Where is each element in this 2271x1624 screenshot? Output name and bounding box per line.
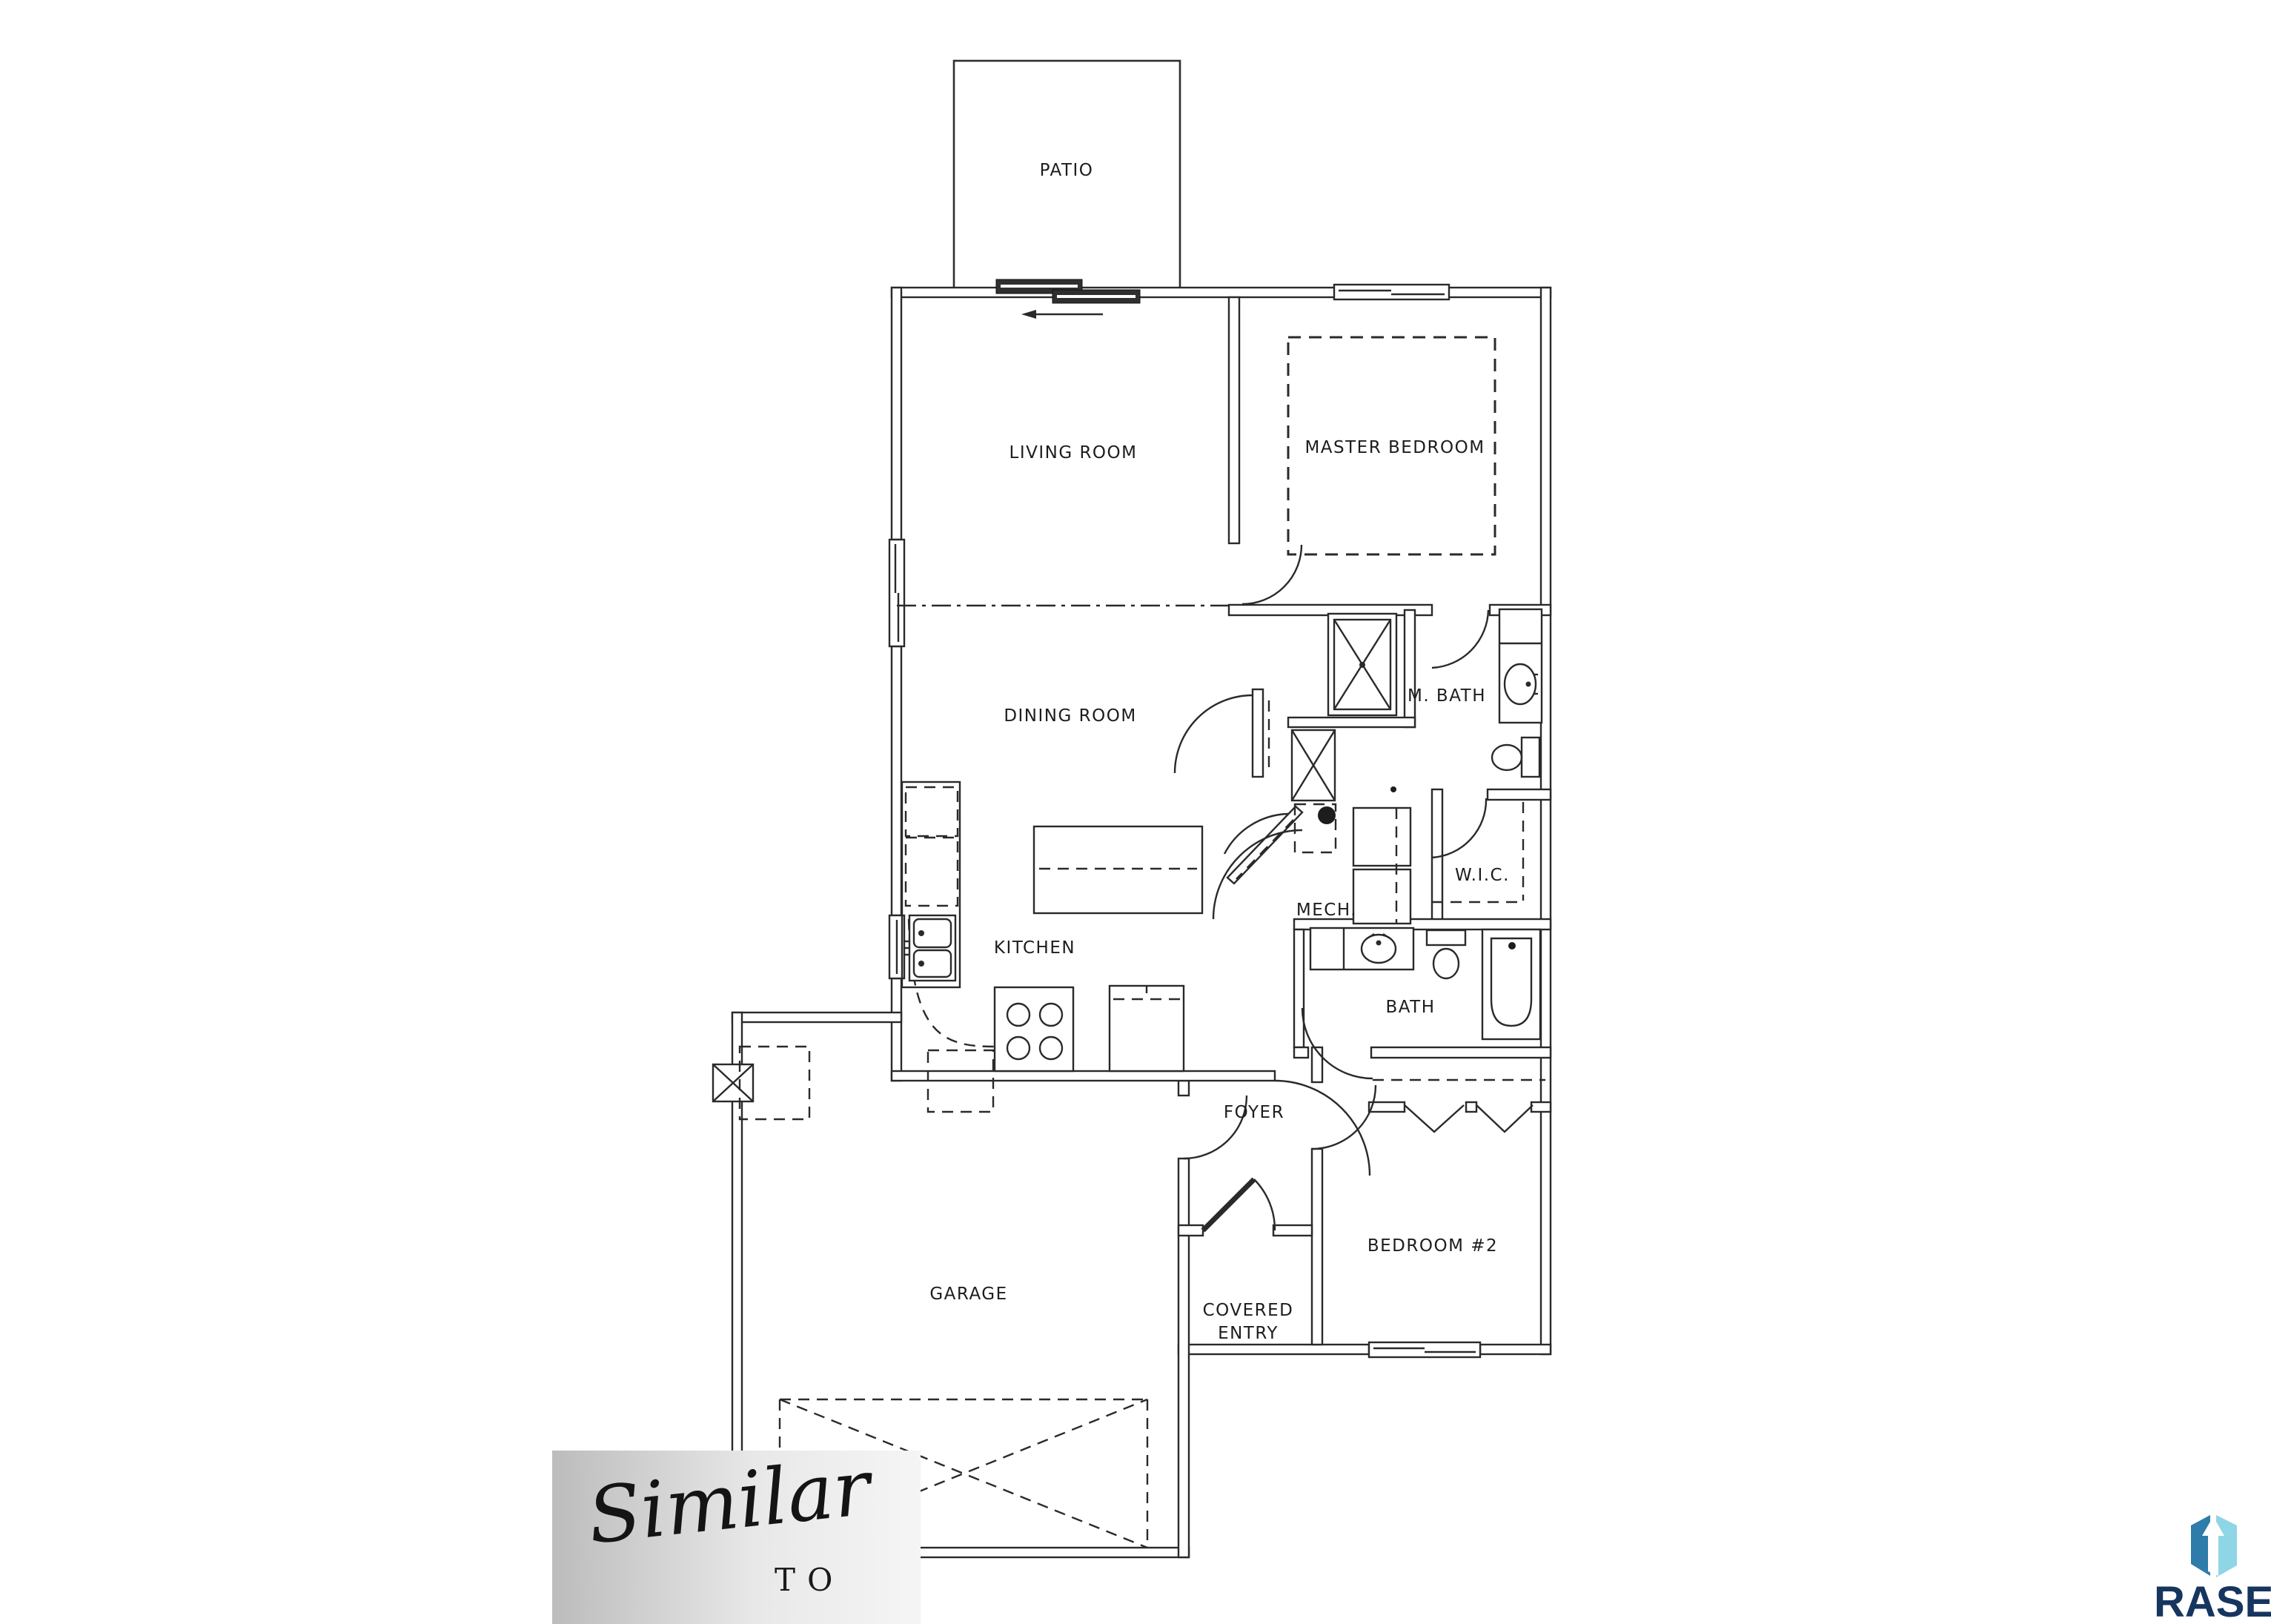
watermark: Similar TO (552, 1451, 921, 1624)
mbath-toilet-icon (1492, 738, 1539, 777)
room-label-mech: MECH. (1296, 901, 1357, 920)
bathtub-icon (1482, 929, 1540, 1039)
front-entry-door (1203, 1179, 1275, 1230)
furnace-icon (1292, 730, 1335, 801)
room-label-wic: W.I.C. (1455, 866, 1510, 885)
refrigerator-icon (906, 838, 958, 906)
garage-vent-icon (713, 1064, 753, 1101)
floor-plan-svg: PATIO LIVING ROOM MASTER BEDROOM M. BATH… (0, 0, 2271, 1624)
window-master (1334, 285, 1449, 299)
room-label-bedroom2: BEDROOM #2 (1367, 1236, 1498, 1256)
bath-vanity-sink-icon (1310, 928, 1413, 970)
room-label-patio: PATIO (1040, 161, 1094, 180)
brand-logo: RASE (2149, 1505, 2271, 1624)
bedroom2-door-arc (1312, 1085, 1376, 1149)
room-label-master: MASTER BEDROOM (1304, 438, 1485, 457)
stove-icon (995, 987, 1073, 1071)
floor-drain-icon (1318, 806, 1336, 824)
logo-text: RASE (2154, 1577, 2271, 1624)
sliding-door-icon (996, 279, 1140, 319)
room-label-bath: BATH (1385, 998, 1435, 1017)
room-label-garage: GARAGE (929, 1285, 1007, 1304)
shower-icon (1328, 614, 1396, 715)
window-dining (889, 540, 904, 646)
mbath-sink-icon (1499, 609, 1542, 723)
room-label-foyer: FOYER (1224, 1103, 1284, 1122)
watermark-script-text: Similar (584, 1442, 875, 1561)
floor-plan-page: PATIO LIVING ROOM MASTER BEDROOM M. BATH… (0, 0, 2271, 1624)
watermark-sub-text: TO (775, 1562, 844, 1598)
mbath-door-arc (1432, 610, 1488, 668)
room-label-mbath: M. BATH (1408, 686, 1486, 706)
small-dot (1390, 786, 1396, 792)
room-label-dining: DINING ROOM (1004, 706, 1136, 726)
pantry-doors (1175, 695, 1293, 879)
mech-door-arc (1213, 830, 1302, 919)
washer-dryer-icon (1353, 808, 1410, 924)
garage-equipment (740, 1047, 993, 1119)
fridge-box-icon (1110, 986, 1184, 1071)
kitchen-island (1034, 826, 1202, 913)
room-label-kitchen: KITCHEN (994, 938, 1075, 958)
room-label-living: LIVING ROOM (1009, 443, 1138, 463)
window-bedroom2 (1369, 1342, 1480, 1357)
room-label-covered-entry-1: COVERED (1203, 1301, 1294, 1320)
kitchen-sink-icon (905, 915, 955, 981)
room-label-covered-entry-2: ENTRY (1218, 1324, 1279, 1343)
kitchen-counters (902, 782, 995, 1047)
bath-toilet-icon (1427, 930, 1465, 978)
wic-shelf-lines (1432, 802, 1523, 902)
